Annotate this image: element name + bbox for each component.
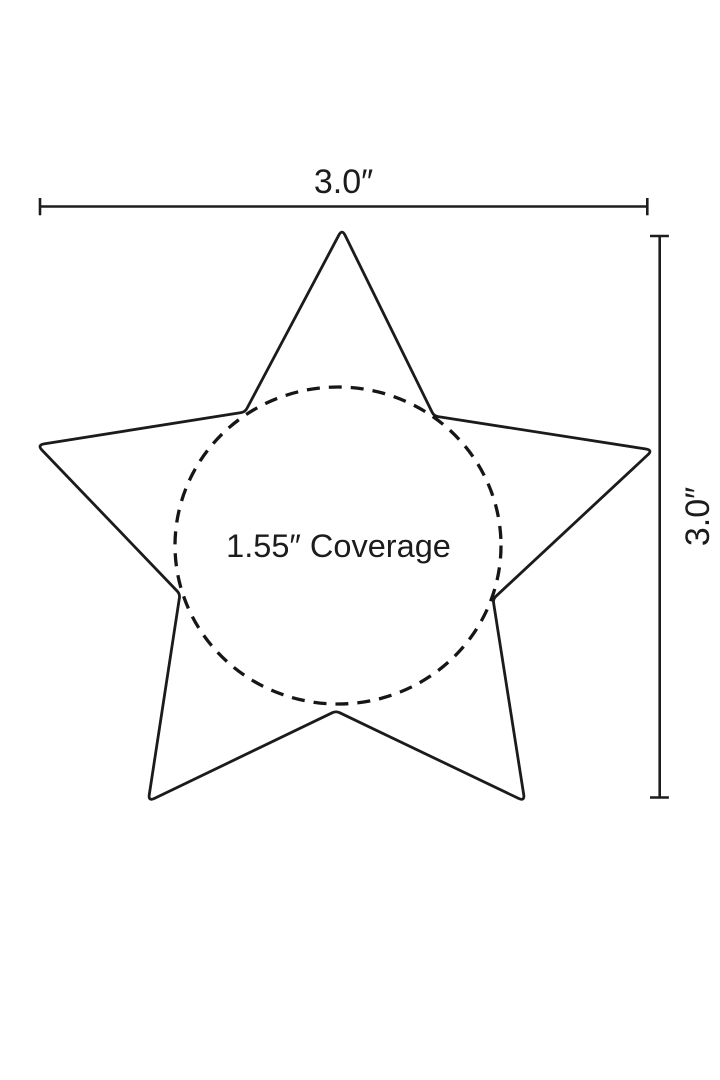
svg-text:3.0″: 3.0″ — [314, 163, 373, 201]
svg-text:1.55″ Coverage: 1.55″ Coverage — [226, 528, 451, 564]
svg-text:3.0″: 3.0″ — [679, 487, 717, 546]
